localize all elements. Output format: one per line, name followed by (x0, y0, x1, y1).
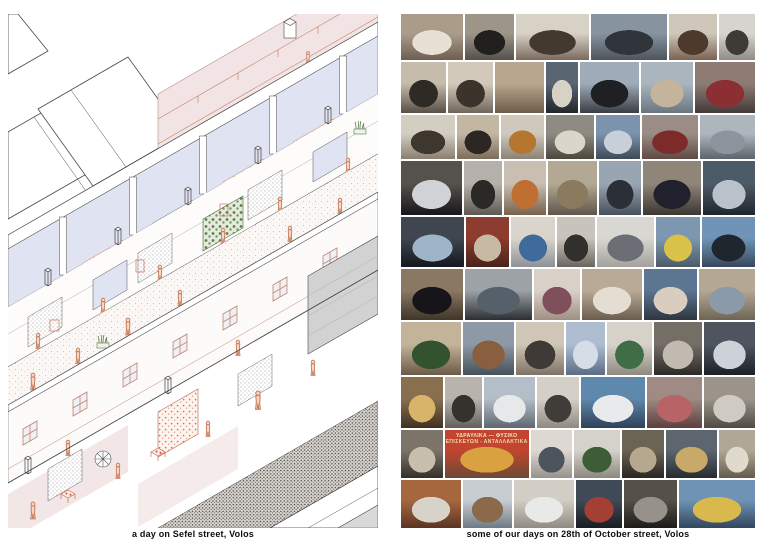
photo-tile (546, 62, 578, 113)
photo-tile (580, 62, 638, 113)
photo-tile (401, 62, 446, 113)
collage-row (401, 217, 755, 268)
photo-tile (548, 161, 596, 214)
collage-row (401, 115, 755, 159)
photo-tile (401, 430, 443, 478)
photo-tile (591, 14, 667, 60)
photo-tile (457, 115, 499, 159)
photo-tile (537, 377, 579, 428)
collage-row: ΥΔΡΑΥΛΙΚΑ — ΦΥΣΙΚΟΕΠΙΣΚΕΥΩΝ - ΑΝΤΑΛΛΑΚΤΙ… (401, 430, 755, 478)
photo-tile (401, 161, 462, 214)
greek-shop-sign: ΥΔΡΑΥΛΙΚΑ — ΦΥΣΙΚΟΕΠΙΣΚΕΥΩΝ - ΑΝΤΑΛΛΑΚΤΙ… (445, 433, 529, 446)
left-caption: a day on Sefel street, Volos (8, 529, 378, 541)
photo-tile (401, 269, 463, 320)
right-caption: some of our days on 28th of October stre… (401, 529, 755, 541)
photo-tile (654, 322, 703, 375)
photo-tile (546, 115, 594, 159)
photo-tile (495, 62, 544, 113)
photo-tile (582, 269, 642, 320)
photo-tile (534, 269, 580, 320)
photo-tile (511, 217, 555, 268)
collage-row (401, 14, 755, 60)
photo-tile (501, 115, 545, 159)
photo-tile (666, 430, 717, 478)
photo-tile (669, 14, 718, 60)
presentation-board: ΥΔΡΑΥΛΙΚΑ — ΦΥΣΙΚΟΕΠΙΣΚΕΥΩΝ - ΑΝΤΑΛΛΑΚΤΙ… (0, 0, 780, 552)
photo-tile (516, 14, 589, 60)
photo-tile (566, 322, 605, 375)
photo-tile (704, 377, 755, 428)
photo-tile (695, 62, 755, 113)
collage-row (401, 480, 755, 528)
axonometric-panel (8, 14, 378, 528)
spiral-stair (95, 451, 111, 467)
photo-tile (401, 217, 464, 268)
photo-tile (401, 115, 455, 159)
photo-tile (596, 115, 640, 159)
photo-tile (445, 377, 482, 428)
photo-tile (465, 14, 514, 60)
photo-tile (607, 322, 652, 375)
collage-row (401, 161, 755, 214)
collage-row (401, 322, 755, 375)
photo-tile (463, 322, 514, 375)
photo-tile (557, 217, 595, 268)
photo-tile (401, 480, 461, 528)
photo-tile (699, 269, 755, 320)
collage-row (401, 269, 755, 320)
photo-tile (643, 161, 701, 214)
photo-tile (642, 115, 697, 159)
photo-tile (622, 430, 664, 478)
photo-tile (448, 62, 493, 113)
photo-tile (484, 377, 535, 428)
photo-tile (679, 480, 755, 528)
photo-tile (624, 480, 678, 528)
photo-tile (703, 161, 755, 214)
photo-tile (465, 269, 531, 320)
greek-sign-line2: ΕΠΙΣΚΕΥΩΝ - ΑΝΤΑΛΛΑΚΤΙΚΑ (445, 439, 529, 445)
photo-tile (641, 62, 693, 113)
photo-tile (656, 217, 700, 268)
photo-tile (576, 480, 622, 528)
photo-tile-greek-sign: ΥΔΡΑΥΛΙΚΑ — ΦΥΣΙΚΟΕΠΙΣΚΕΥΩΝ - ΑΝΤΑΛΛΑΚΤΙ… (445, 430, 529, 478)
photo-tile (644, 269, 696, 320)
photo-tile (401, 377, 443, 428)
photo-tile (464, 161, 501, 214)
photo-tile (702, 217, 755, 268)
photo-tile (597, 217, 654, 268)
photo-collage: ΥΔΡΑΥΛΙΚΑ — ΦΥΣΙΚΟΕΠΙΣΚΕΥΩΝ - ΑΝΤΑΛΛΑΚΤΙ… (401, 14, 755, 528)
photo-tile (504, 161, 547, 214)
photo-tile (599, 161, 642, 214)
collage-row (401, 377, 755, 428)
photo-tile (719, 430, 755, 478)
photo-tile (514, 480, 574, 528)
photo-tile (647, 377, 702, 428)
photo-tile (401, 322, 461, 375)
axonometric-drawing (8, 14, 378, 528)
photo-tile (574, 430, 619, 478)
photo-tile (531, 430, 573, 478)
photo-tile (704, 322, 755, 375)
photo-tile (516, 322, 565, 375)
photo-tile (719, 14, 755, 60)
photo-tile (581, 377, 645, 428)
photo-tile (466, 217, 510, 268)
photo-tile (463, 480, 513, 528)
photo-tile (700, 115, 755, 159)
collage-row (401, 62, 755, 113)
photo-tile (401, 14, 463, 60)
